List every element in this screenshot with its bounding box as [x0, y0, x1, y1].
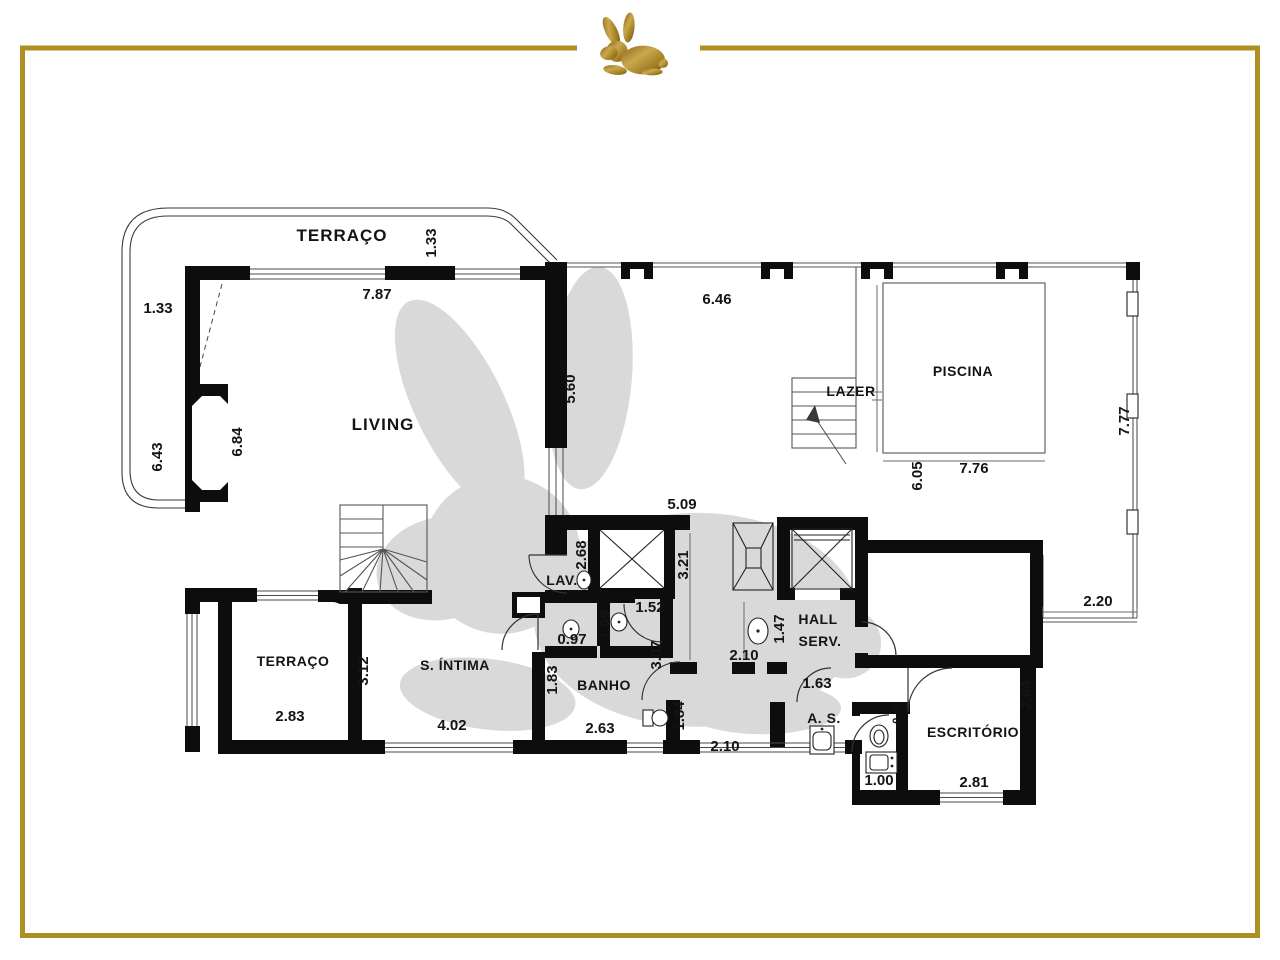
overhang-dashed-line	[197, 284, 222, 378]
dim-terrace-top-depth: 1.33	[423, 228, 440, 257]
dim-hall-left-height: 3.21	[675, 550, 692, 579]
dim-bath-width: 1.00	[864, 772, 893, 789]
dim-s-intima-width: 4.02	[437, 717, 466, 734]
dim-wc-width: 1.52	[635, 599, 664, 616]
dim-living-top-width: 7.87	[362, 286, 391, 303]
dim-terrace-left-depth: 1.33	[143, 300, 172, 317]
dim-banho-left-height: 1.83	[544, 665, 561, 694]
dim-terrace2-divider-height: 3.12	[355, 656, 372, 685]
label-lav: LAV.	[546, 572, 578, 588]
dim-bath-depth: 0.74	[891, 701, 903, 723]
dim-corridor-bottom-width: 2.10	[710, 738, 739, 755]
toilet-icon	[643, 710, 668, 726]
label-hall: HALL	[798, 611, 837, 627]
dim-wc2-width: 0.97	[557, 631, 586, 648]
toilet-icon	[870, 725, 888, 747]
laundry-sink-icon	[810, 726, 834, 754]
label-piscina: PISCINA	[933, 363, 993, 379]
dim-hall-top-width: 5.09	[667, 496, 696, 513]
lazer-stairs-icon	[792, 267, 856, 464]
dim-wc-height: 1.09	[597, 610, 614, 639]
dim-escritorio-height: 2.64	[1018, 680, 1035, 710]
label-terrace-top: TERRAÇO	[296, 226, 387, 245]
label-terrace-bottom: TERRAÇO	[257, 653, 330, 669]
rabbit-logo	[599, 12, 668, 76]
deck-columns	[621, 262, 1140, 280]
label-s-intima: S. ÍNTIMA	[420, 657, 490, 673]
dim-living-right-height: 5.60	[562, 374, 579, 403]
dim-deck-bottom-width: 2.20	[1083, 593, 1112, 610]
dim-living-left-height: 6.84	[229, 427, 246, 457]
label-escritorio: ESCRITÓRIO	[927, 723, 1019, 740]
dim-corridor-height: 3.07	[648, 640, 665, 669]
dim-deck-top-width: 6.46	[702, 291, 731, 308]
dim-outer-left-height: 6.43	[149, 442, 166, 471]
dim-lav-height: 2.68	[573, 540, 590, 569]
dim-escritorio-width: 2.81	[959, 774, 988, 791]
dim-hall-width: 2.10	[729, 647, 758, 664]
label-lazer: LAZER	[826, 383, 875, 399]
sink-icon	[866, 752, 897, 773]
dim-as-door-offset: 1.63	[802, 675, 831, 692]
dim-deck-right-height: 7.77	[1116, 406, 1133, 435]
dim-pool-height: 6.05	[909, 461, 926, 490]
label-banho: BANHO	[577, 677, 631, 693]
floor-plan-page: TERRAÇO LIVING PISCINA LAZER LAV. BANHO …	[0, 0, 1280, 960]
dim-pool-width: 7.76	[959, 460, 988, 477]
dim-terrace2-width: 2.83	[275, 708, 304, 725]
label-serv: SERV.	[799, 633, 842, 649]
label-living: LIVING	[352, 415, 415, 434]
label-as: A. S.	[807, 710, 841, 726]
dim-banho-width: 2.63	[585, 720, 614, 737]
dim-corridor2-height: 1.84	[671, 701, 688, 731]
basin-icon	[748, 618, 768, 644]
toilet-icon	[577, 571, 591, 589]
floor-plan-canvas: TERRAÇO LIVING PISCINA LAZER LAV. BANHO …	[0, 0, 1280, 960]
dim-hall-serv-height: 1.47	[771, 614, 788, 643]
door-escritorio	[908, 668, 952, 712]
